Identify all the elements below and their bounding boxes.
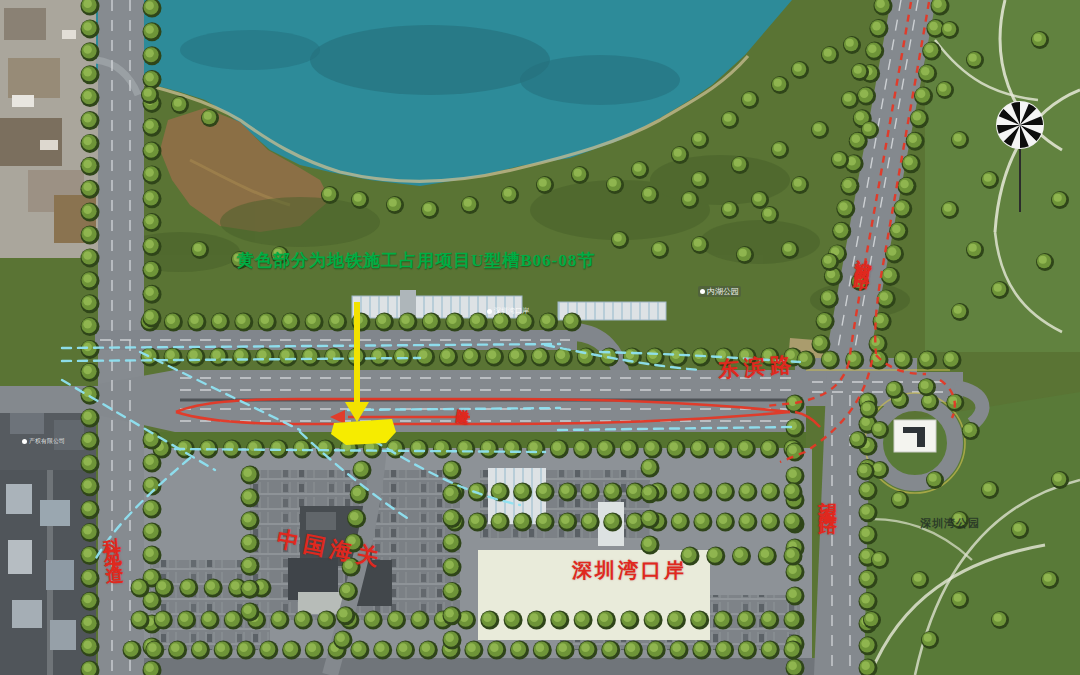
poi-dot-icon [700,289,705,294]
u-trough-segment [331,419,396,445]
road-label-shahexi: 沙河西路 [854,245,874,263]
place-label-bay-park: 深圳湾公园 [920,518,980,530]
poi-dot-icon [487,309,492,314]
poi-label-company: 产权有限公司 [22,437,65,446]
poi-label-port: 深圳湾口岸 [487,306,529,316]
map-image [0,0,1080,675]
loop-building [894,420,936,452]
road-label-wanghai: 望海路 [817,486,838,507]
satellite-map: 黄色部分为地铁施工占用项目U型槽B06-08节 东滨路 沙河西路 望海路 科苑大… [0,0,1080,675]
north-east-park [925,0,1080,352]
poi-dot-icon [22,439,27,444]
construction-note-label: 黄色部分为地铁施工占用项目U型槽B06-08节 [237,252,595,270]
poi-text: 深圳湾口岸 [494,307,529,314]
poi-text: 内湖公园 [707,287,739,296]
poi-label-park: 内湖公园 [698,286,741,297]
place-label-port: 深圳湾口岸 [572,560,687,582]
poi-text: 产权有限公司 [29,438,65,444]
road-label-keyuan: 科苑大道 [99,523,122,561]
